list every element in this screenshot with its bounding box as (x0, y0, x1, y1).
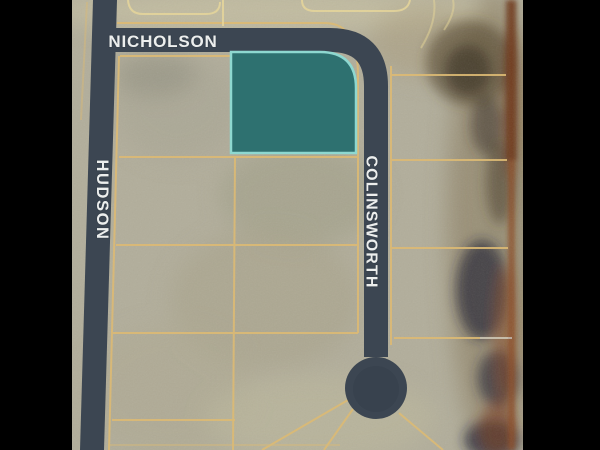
cul-de-sac-center (353, 366, 399, 412)
map-canvas[interactable]: NICHOLSON HUDSON COLINSWORTH (0, 0, 600, 450)
letterbox-left (0, 0, 72, 450)
street-label-hudson: HUDSON (93, 159, 111, 240)
highlighted-parcel[interactable] (231, 52, 356, 153)
map-viewer: NICHOLSON HUDSON COLINSWORTH (0, 0, 600, 450)
street-label-colinsworth: COLINSWORTH (363, 156, 380, 289)
street-label-nicholson: NICHOLSON (108, 32, 217, 51)
letterbox-right (523, 0, 600, 450)
